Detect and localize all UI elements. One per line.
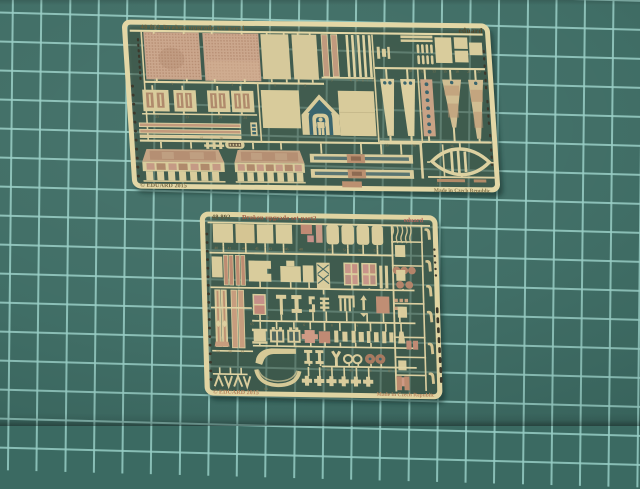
- svg-text:9: 9: [356, 324, 358, 328]
- svg-text:41: 41: [255, 247, 259, 251]
- svg-text:49: 49: [328, 248, 332, 252]
- svg-text:Made in Czech Republic: Made in Czech Republic: [434, 188, 491, 195]
- svg-text:8: 8: [331, 323, 333, 327]
- svg-text:84: 84: [327, 368, 331, 372]
- svg-text:15: 15: [443, 69, 447, 73]
- svg-text:13: 13: [432, 69, 436, 73]
- svg-text:22: 22: [477, 70, 481, 74]
- svg-text:6: 6: [267, 316, 269, 320]
- svg-text:7: 7: [256, 315, 258, 319]
- svg-text:eduard: eduard: [404, 217, 424, 224]
- svg-text:© EDUARD 2015: © EDUARD 2015: [140, 182, 187, 189]
- svg-text:24: 24: [243, 116, 247, 120]
- svg-text:36: 36: [450, 144, 454, 148]
- svg-text:41: 41: [228, 246, 232, 250]
- svg-text:26: 26: [220, 136, 224, 140]
- svg-text:Made in Czech Republic: Made in Czech Republic: [377, 392, 435, 399]
- svg-text:18: 18: [455, 70, 459, 74]
- svg-text:34: 34: [412, 144, 416, 148]
- svg-text:87: 87: [388, 369, 392, 373]
- svg-text:17: 17: [436, 182, 440, 186]
- svg-text:23: 23: [155, 115, 159, 119]
- svg-text:85: 85: [349, 369, 353, 373]
- svg-text:33: 33: [385, 143, 389, 147]
- svg-text:6: 6: [303, 323, 305, 327]
- svg-text:52: 52: [358, 248, 362, 252]
- svg-text:60: 60: [229, 350, 233, 354]
- svg-text:51: 51: [343, 248, 347, 252]
- svg-text:27: 27: [200, 136, 204, 140]
- svg-text:48 892: 48 892: [212, 214, 231, 221]
- svg-text:10: 10: [408, 69, 412, 73]
- svg-text:64: 64: [264, 387, 268, 391]
- svg-text:42: 42: [268, 247, 272, 251]
- svg-text:Draken upgrade set part2: Draken upgrade set part2: [242, 214, 317, 222]
- svg-text:65: 65: [250, 322, 254, 326]
- svg-text:12: 12: [420, 69, 424, 73]
- svg-text:24: 24: [218, 115, 222, 119]
- svg-text:46: 46: [285, 247, 289, 251]
- svg-text:59: 59: [216, 349, 220, 353]
- svg-text:© EDUARD 2015: © EDUARD 2015: [213, 389, 259, 397]
- svg-text:21: 21: [467, 70, 471, 74]
- svg-text:61: 61: [241, 350, 245, 354]
- svg-text:48: 48: [299, 247, 303, 251]
- svg-text:23: 23: [185, 115, 189, 119]
- svg-text:40: 40: [214, 246, 218, 250]
